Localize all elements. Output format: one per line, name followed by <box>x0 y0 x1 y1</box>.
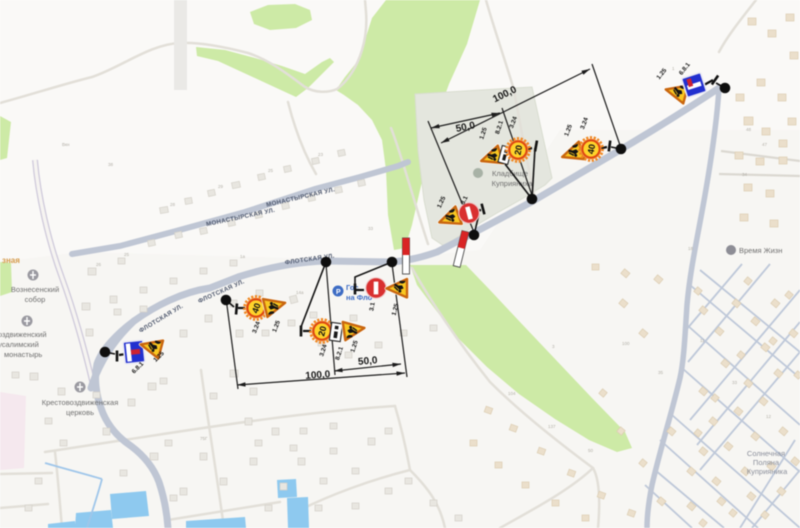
svg-text:P: P <box>336 289 341 296</box>
svg-text:34: 34 <box>742 172 748 177</box>
svg-text:50,0: 50,0 <box>358 355 379 368</box>
svg-text:14а: 14а <box>296 290 304 295</box>
svg-text:зная: зная <box>2 256 20 265</box>
svg-text:137: 137 <box>548 424 556 429</box>
svg-text:40: 40 <box>586 143 598 155</box>
svg-text:12: 12 <box>766 414 772 419</box>
svg-text:1а: 1а <box>240 254 246 259</box>
svg-text:38: 38 <box>108 162 114 167</box>
svg-text:собор: собор <box>25 295 46 304</box>
svg-text:29: 29 <box>218 184 224 189</box>
svg-text:48: 48 <box>746 127 752 132</box>
svg-text:33: 33 <box>368 226 374 231</box>
svg-text:Вкн: Вкн <box>62 142 70 147</box>
svg-text:100,0: 100,0 <box>305 369 331 382</box>
svg-text:100: 100 <box>622 341 630 346</box>
svg-text:Вознесенский: Вознесенский <box>11 285 59 294</box>
svg-text:Поляна: Поляна <box>753 458 780 467</box>
svg-text:25: 25 <box>124 252 130 257</box>
svg-text:35: 35 <box>658 370 664 375</box>
svg-text:47: 47 <box>762 142 768 147</box>
svg-text:33: 33 <box>732 380 738 385</box>
svg-text:монастырь: монастырь <box>4 350 42 359</box>
svg-text:18: 18 <box>688 246 694 251</box>
svg-text:25: 25 <box>268 168 274 173</box>
svg-text:Солнечная: Солнечная <box>747 449 785 458</box>
svg-text:28: 28 <box>170 202 176 207</box>
svg-text:Время Жизн: Время Жизн <box>739 246 782 255</box>
svg-text:Куприяника: Куприяника <box>747 467 788 476</box>
svg-text:23: 23 <box>318 152 324 157</box>
svg-text:26: 26 <box>96 262 102 267</box>
svg-text:церковь: церковь <box>66 408 94 417</box>
svg-text:75Г: 75Г <box>200 436 208 441</box>
svg-text:воздвиженский: воздвиженский <box>0 330 47 339</box>
svg-text:русалимский: русалимский <box>0 340 39 349</box>
svg-text:Крестовоздвиженская: Крестовоздвиженская <box>42 398 119 407</box>
svg-text:11: 11 <box>700 338 705 343</box>
svg-text:50: 50 <box>588 448 594 453</box>
svg-text:104: 104 <box>508 391 516 396</box>
svg-text:20: 20 <box>513 144 525 156</box>
